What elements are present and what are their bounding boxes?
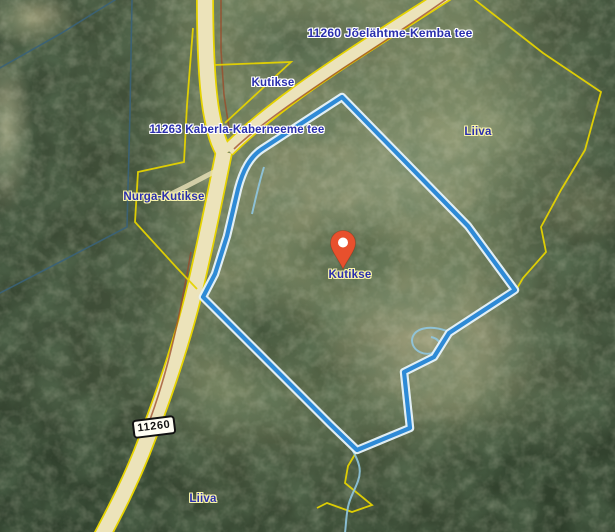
label-place-liiva-east: Liiva: [464, 126, 491, 138]
map-feature-layer: [0, 0, 615, 532]
location-marker-pin[interactable]: [325, 230, 361, 270]
label-road-11263-kaberla-kaberneeme: 11263 Kaberla-Kaberneeme tee: [149, 124, 324, 136]
map-canvas[interactable]: 11260 Jõelähtme-Kemba tee Kutikse 11263 …: [0, 0, 615, 532]
label-place-liiva-south: Liiva: [189, 493, 216, 505]
label-road-11260-jolahtme-kemba: 11260 Jõelähtme-Kemba tee: [307, 26, 472, 40]
label-parcel-kutikse-north: Kutikse: [252, 77, 295, 89]
label-place-nurga-kutikse: Nurga-Kutikse: [123, 191, 204, 203]
label-marker-kutikse: Kutikse: [329, 269, 372, 281]
pin-body: [331, 231, 356, 270]
pin-hole: [338, 238, 348, 248]
